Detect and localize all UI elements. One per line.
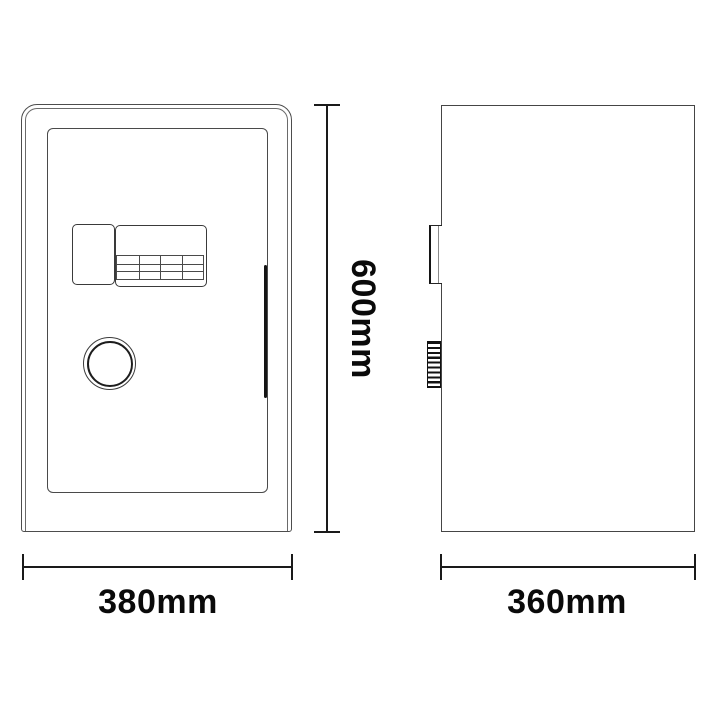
keypad-button [182, 271, 204, 279]
keypad-button-grid [116, 255, 204, 280]
door-knob [83, 337, 136, 390]
keypad-button [160, 271, 182, 279]
dim-width-tick-left [22, 554, 24, 580]
dim-height-label: 600mm [345, 219, 381, 419]
keypad-button [139, 256, 161, 264]
dim-depth-label: 360mm [467, 584, 667, 620]
keypad-button [139, 264, 161, 272]
dim-height-line [326, 105, 328, 533]
dim-depth-tick-right [694, 554, 696, 580]
keypad-button [182, 256, 204, 264]
keypad-side-profile [429, 225, 442, 284]
dim-height-tick-top [314, 104, 340, 106]
door-edge-groove [264, 265, 267, 398]
dim-depth-line [440, 566, 696, 568]
safe-door [47, 128, 268, 493]
knob-side-profile-knurled [427, 341, 441, 388]
keypad-button [182, 264, 204, 272]
door-knob-inner-ring [87, 341, 133, 387]
side-view-safe-body [441, 105, 695, 532]
keypad-display-window [72, 224, 115, 285]
keypad-button [117, 264, 139, 272]
dim-depth-tick-left [440, 554, 442, 580]
dim-width-tick-right [291, 554, 293, 580]
keypad-button [160, 264, 182, 272]
keypad-button [117, 271, 139, 279]
dim-width-label: 380mm [58, 584, 258, 620]
dim-height-tick-bottom [314, 531, 340, 533]
keypad-button [117, 256, 139, 264]
keypad-side-lip-line [438, 226, 439, 283]
diagram-canvas: 600mm 380mm 360mm [0, 0, 720, 720]
keypad-button [139, 271, 161, 279]
keypad-button [160, 256, 182, 264]
dim-width-line [22, 566, 293, 568]
